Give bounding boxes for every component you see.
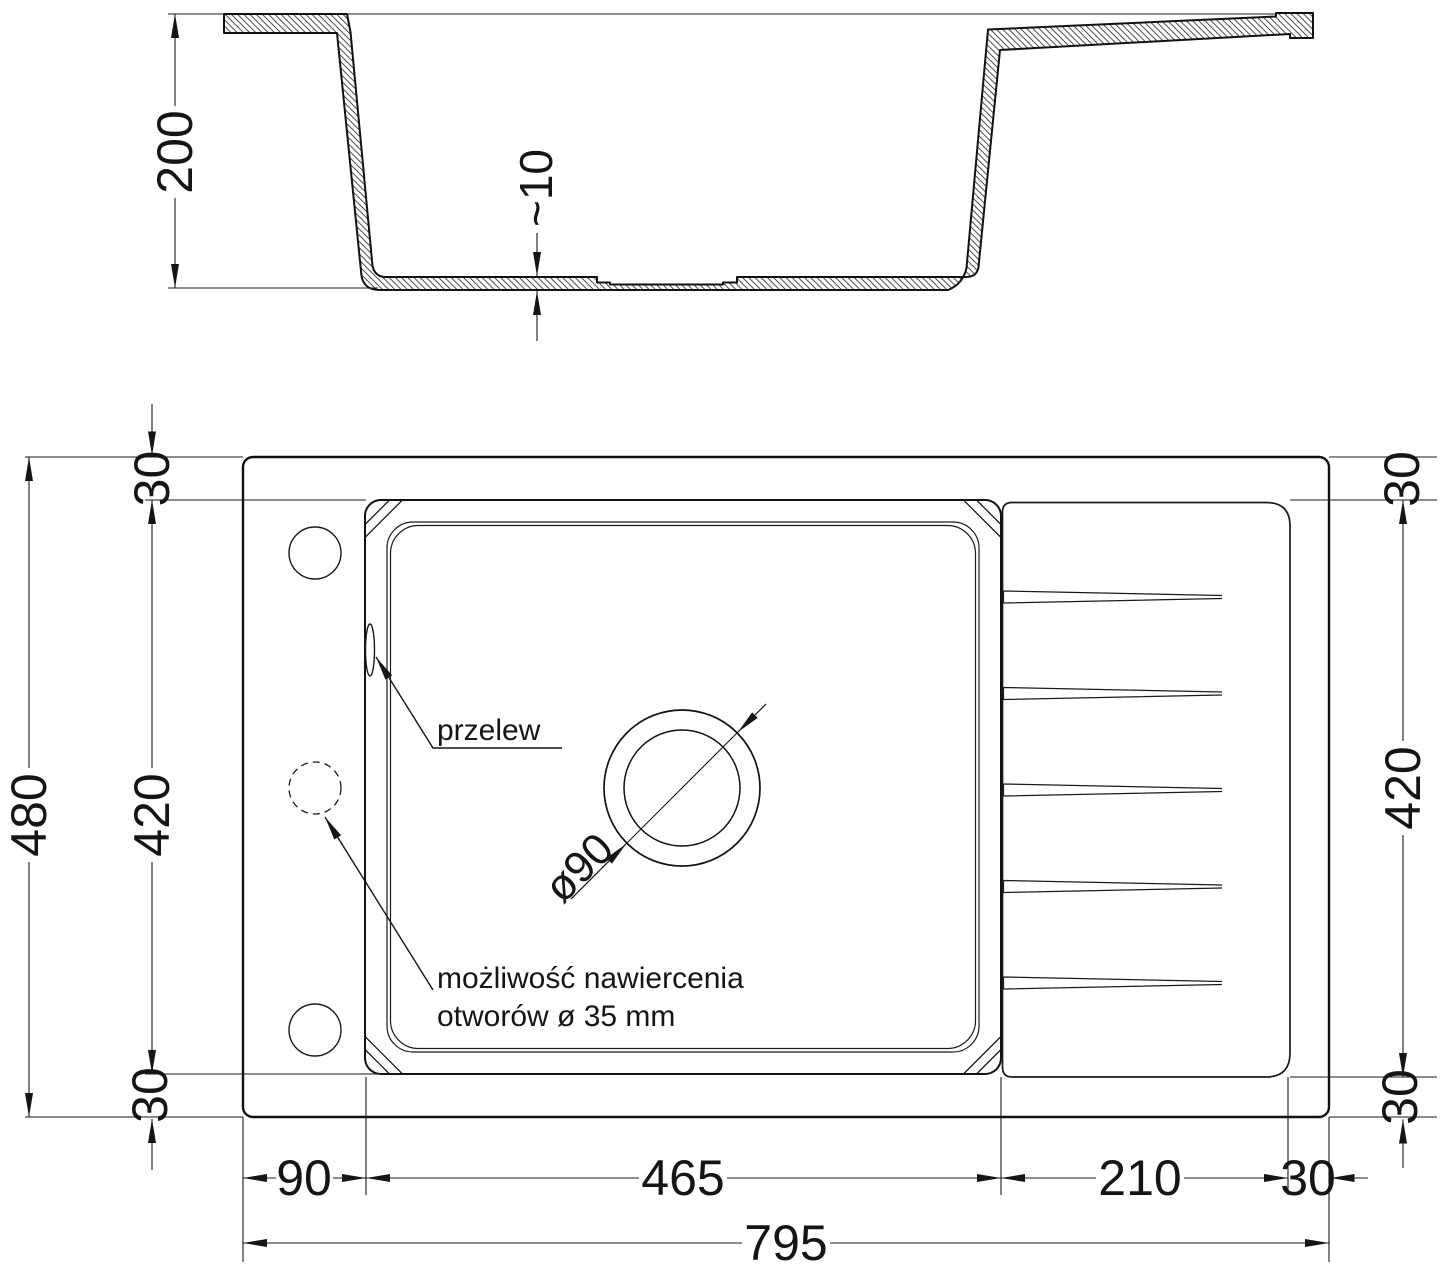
dim-text-right-drainboard: 420: [1375, 746, 1431, 829]
dim-text-right-edge-bottom: 30: [1372, 1069, 1428, 1125]
dim-text-bottom-left-offset: 90: [276, 1150, 332, 1206]
groove-4: [1004, 881, 1223, 893]
dims-left-column: 480 30 420 30: [1, 404, 400, 1170]
dim-text-bottom-right-margin: 30: [1280, 1150, 1336, 1206]
dim-text-bottom-overall: 795: [744, 1215, 827, 1271]
section-material-hatched: [224, 13, 1313, 290]
dim-bottom-bowl-width: 465: [366, 1150, 1001, 1206]
drainboard-outline: [1003, 503, 1291, 1078]
faucet-hole: [289, 527, 341, 579]
dim-text-bottom-drainboard-width: 210: [1098, 1150, 1181, 1206]
dim-right-drainboard: 420: [1375, 500, 1431, 1077]
label-drill-note-line1: możliwość nawiercenia: [437, 962, 744, 995]
dim-left-edge-bottom: 30: [122, 1067, 178, 1170]
dims-bottom-rows: 90 465 210 30 795: [243, 1077, 1368, 1271]
overflow-slot: [366, 624, 375, 676]
groove-1: [1004, 591, 1223, 603]
chamfer-top-left: [366, 501, 403, 538]
optional-drill-hole-dashed: [289, 762, 341, 814]
dim-bottom-right-margin: 30: [1280, 1150, 1368, 1206]
dim-left-edge-top: 30: [124, 404, 180, 506]
dim-text-left-overall: 480: [1, 773, 57, 856]
sink-technical-drawing: 200 ~10: [0, 0, 1442, 1287]
drain-arrow-upper: [738, 704, 766, 732]
dim-text-right-edge-top: 30: [1374, 451, 1430, 507]
groove-5: [1004, 977, 1223, 989]
dim-text-bottom-bowl-width: 465: [641, 1150, 724, 1206]
dim-bottom-thickness: ~10: [510, 149, 562, 341]
label-drill-note-line2: otworów ø 35 mm: [437, 1000, 675, 1033]
chamfer-bottom-right: [964, 1037, 1001, 1074]
dim-text-section-height: 200: [147, 110, 203, 193]
dim-text-bottom-thickness: ~10: [510, 149, 562, 227]
dim-text-left-edge-top: 30: [124, 451, 180, 507]
groove-2: [1004, 688, 1223, 700]
drainboard-grooves: [1004, 591, 1223, 989]
dim-bottom-overall: 795: [243, 1215, 1329, 1271]
dim-text-left-bowl: 420: [124, 773, 180, 856]
plan-view: ø90 przelew możliwość nawiercenia otworó…: [243, 457, 1329, 1117]
dim-left-bowl: 420: [124, 500, 180, 1074]
drill-note-callout: możliwość nawiercenia otworów ø 35 mm: [325, 817, 744, 1033]
chamfer-bottom-left: [366, 1037, 403, 1074]
dim-left-overall: 480: [1, 457, 57, 1117]
technical-drawing-page: 200 ~10: [0, 0, 1442, 1287]
dim-bottom-left-offset: 90: [243, 1150, 366, 1206]
groove-3: [1004, 784, 1223, 796]
chamfer-top-right: [964, 501, 1001, 538]
dim-right-edge-bottom: 30: [1372, 1069, 1428, 1168]
leader-drill-note: [325, 817, 433, 990]
drain: ø90: [535, 704, 766, 912]
dim-text-drain-diameter: ø90: [535, 824, 623, 912]
second-hole: [289, 1004, 341, 1056]
dims-right-column: 30 420 30: [1290, 451, 1437, 1168]
dim-bottom-drainboard-width: 210: [1001, 1150, 1288, 1206]
cross-section-view: 200 ~10: [147, 13, 1313, 341]
overflow-callout: przelew: [376, 657, 562, 748]
dim-text-left-edge-bottom: 30: [122, 1067, 178, 1123]
label-overflow: przelew: [437, 714, 541, 747]
